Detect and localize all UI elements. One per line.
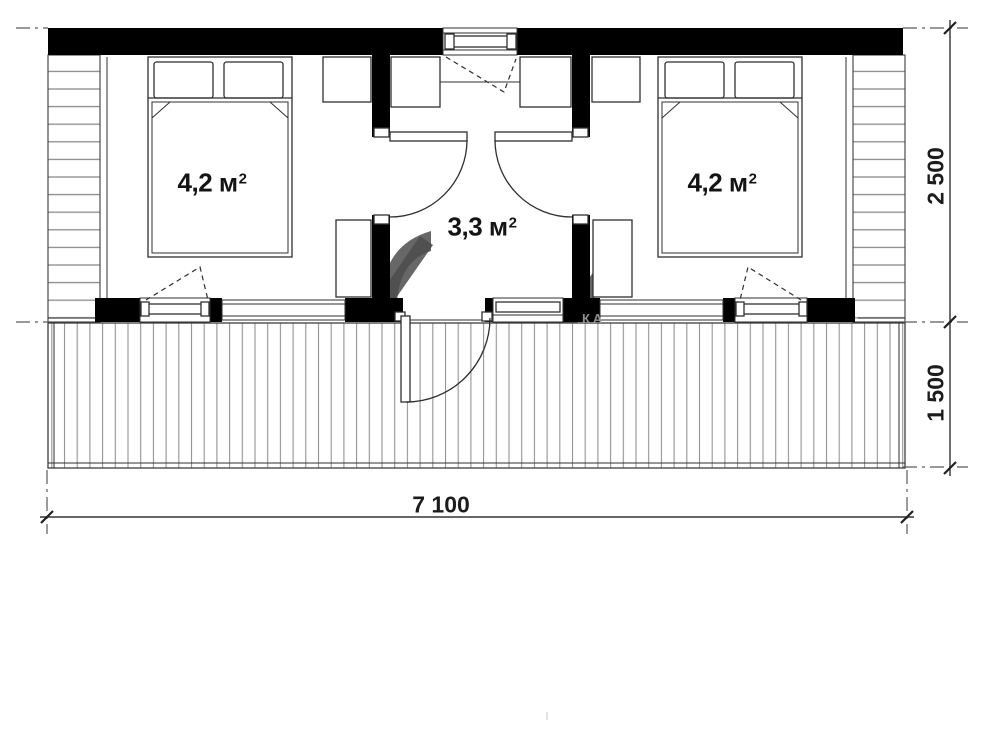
window-hall [485,298,563,322]
dimension-label-total-width: 7 100 [412,492,470,519]
side-wall-hatch-left [48,55,107,322]
hall-cabinet-left [391,57,440,107]
door-left-bedroom [374,128,467,224]
room-area-sup: 2 [239,171,247,188]
dimension-label-house-depth: 2 500 [923,147,950,205]
bed-right [658,57,802,257]
room-label-left-bedroom: 4,2 м2 [178,168,247,199]
room-area-sup: 2 [749,171,757,188]
entry-window [440,28,520,92]
side-wall-hatch-right [846,55,905,322]
plan-drawing [0,0,990,740]
terrace-deck [48,323,905,468]
wardrobe-left-bedroom [336,220,371,297]
dimension-line-bottom [40,511,914,523]
glazing-band-right [600,300,723,320]
wardrobe-right-bedroom [593,220,632,297]
room-area-value: 4,2 м [178,168,238,198]
watermark-text: КА [582,311,605,326]
hall-cabinet-right [520,57,571,107]
door-right-bedroom [495,128,588,224]
bed-left [148,57,292,257]
floor-plan: 4,2 м2 3,3 м2 4,2 м2 2 500 1 500 7 100 К… [0,0,990,740]
closet-left-bedroom [323,57,371,102]
dimension-label-terrace-depth: 1 500 [923,364,950,422]
room-area-value: 3,3 м [448,212,508,242]
room-label-hall: 3,3 м2 [448,212,517,243]
closet-right-bedroom [592,57,640,102]
room-label-right-bedroom: 4,2 м2 [688,168,757,199]
window-right-bedroom [735,267,807,322]
room-area-value: 4,2 м [688,168,748,198]
window-left-bedroom [140,267,210,322]
glazing-band-left [222,300,345,320]
room-area-sup: 2 [509,215,517,232]
